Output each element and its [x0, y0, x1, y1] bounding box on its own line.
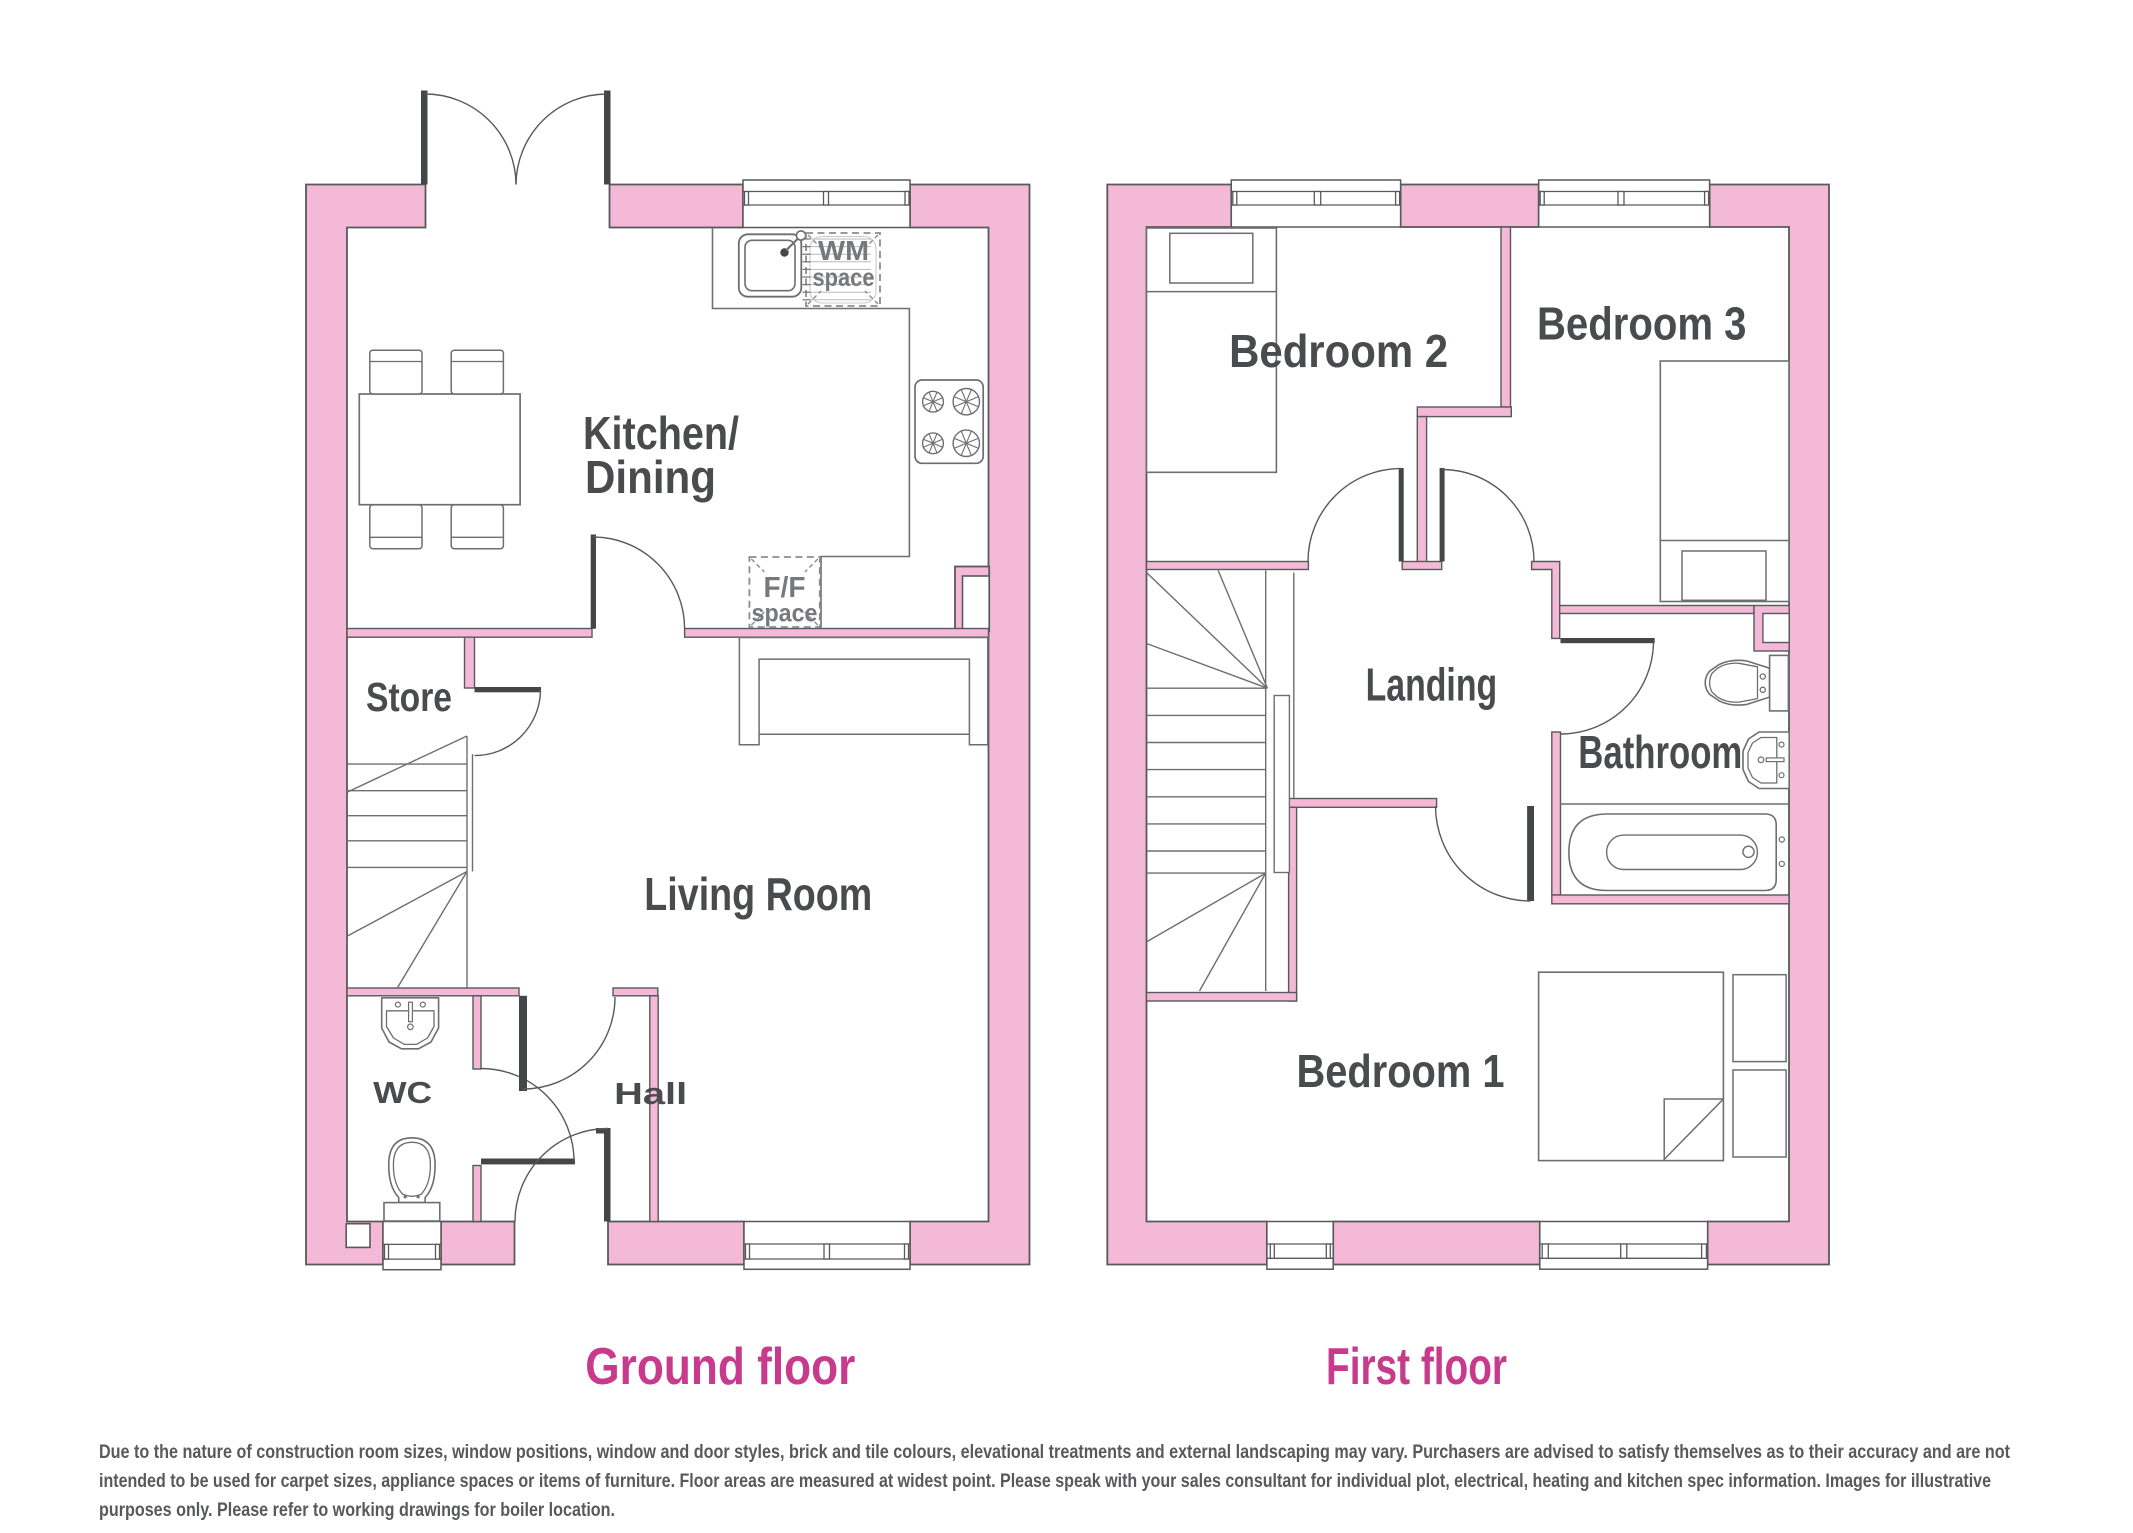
svg-text:space: space [752, 600, 818, 628]
svg-text:Ground floor: Ground floor [585, 1338, 855, 1396]
svg-text:Hall: Hall [614, 1076, 687, 1111]
svg-text:WM: WM [818, 235, 869, 266]
svg-text:Store: Store [366, 674, 452, 720]
svg-text:Dining: Dining [585, 451, 716, 503]
svg-text:Bedroom 2: Bedroom 2 [1229, 325, 1448, 377]
svg-text:Due to the nature of construct: Due to the nature of construction room s… [99, 1441, 2010, 1463]
svg-text:Bathroom: Bathroom [1578, 726, 1742, 778]
svg-text:WC: WC [373, 1075, 432, 1110]
svg-text:Bedroom 1: Bedroom 1 [1297, 1045, 1505, 1097]
svg-text:First floor: First floor [1326, 1338, 1507, 1396]
svg-text:Bedroom 3: Bedroom 3 [1537, 298, 1747, 350]
svg-text:Landing: Landing [1366, 659, 1498, 711]
svg-text:intended to be used for carpet: intended to be used for carpet sizes, ap… [99, 1470, 1991, 1492]
svg-text:Living Room: Living Room [644, 868, 872, 920]
svg-text:purposes only. Please refer to: purposes only. Please refer to working d… [99, 1499, 615, 1521]
svg-text:space: space [813, 264, 875, 292]
